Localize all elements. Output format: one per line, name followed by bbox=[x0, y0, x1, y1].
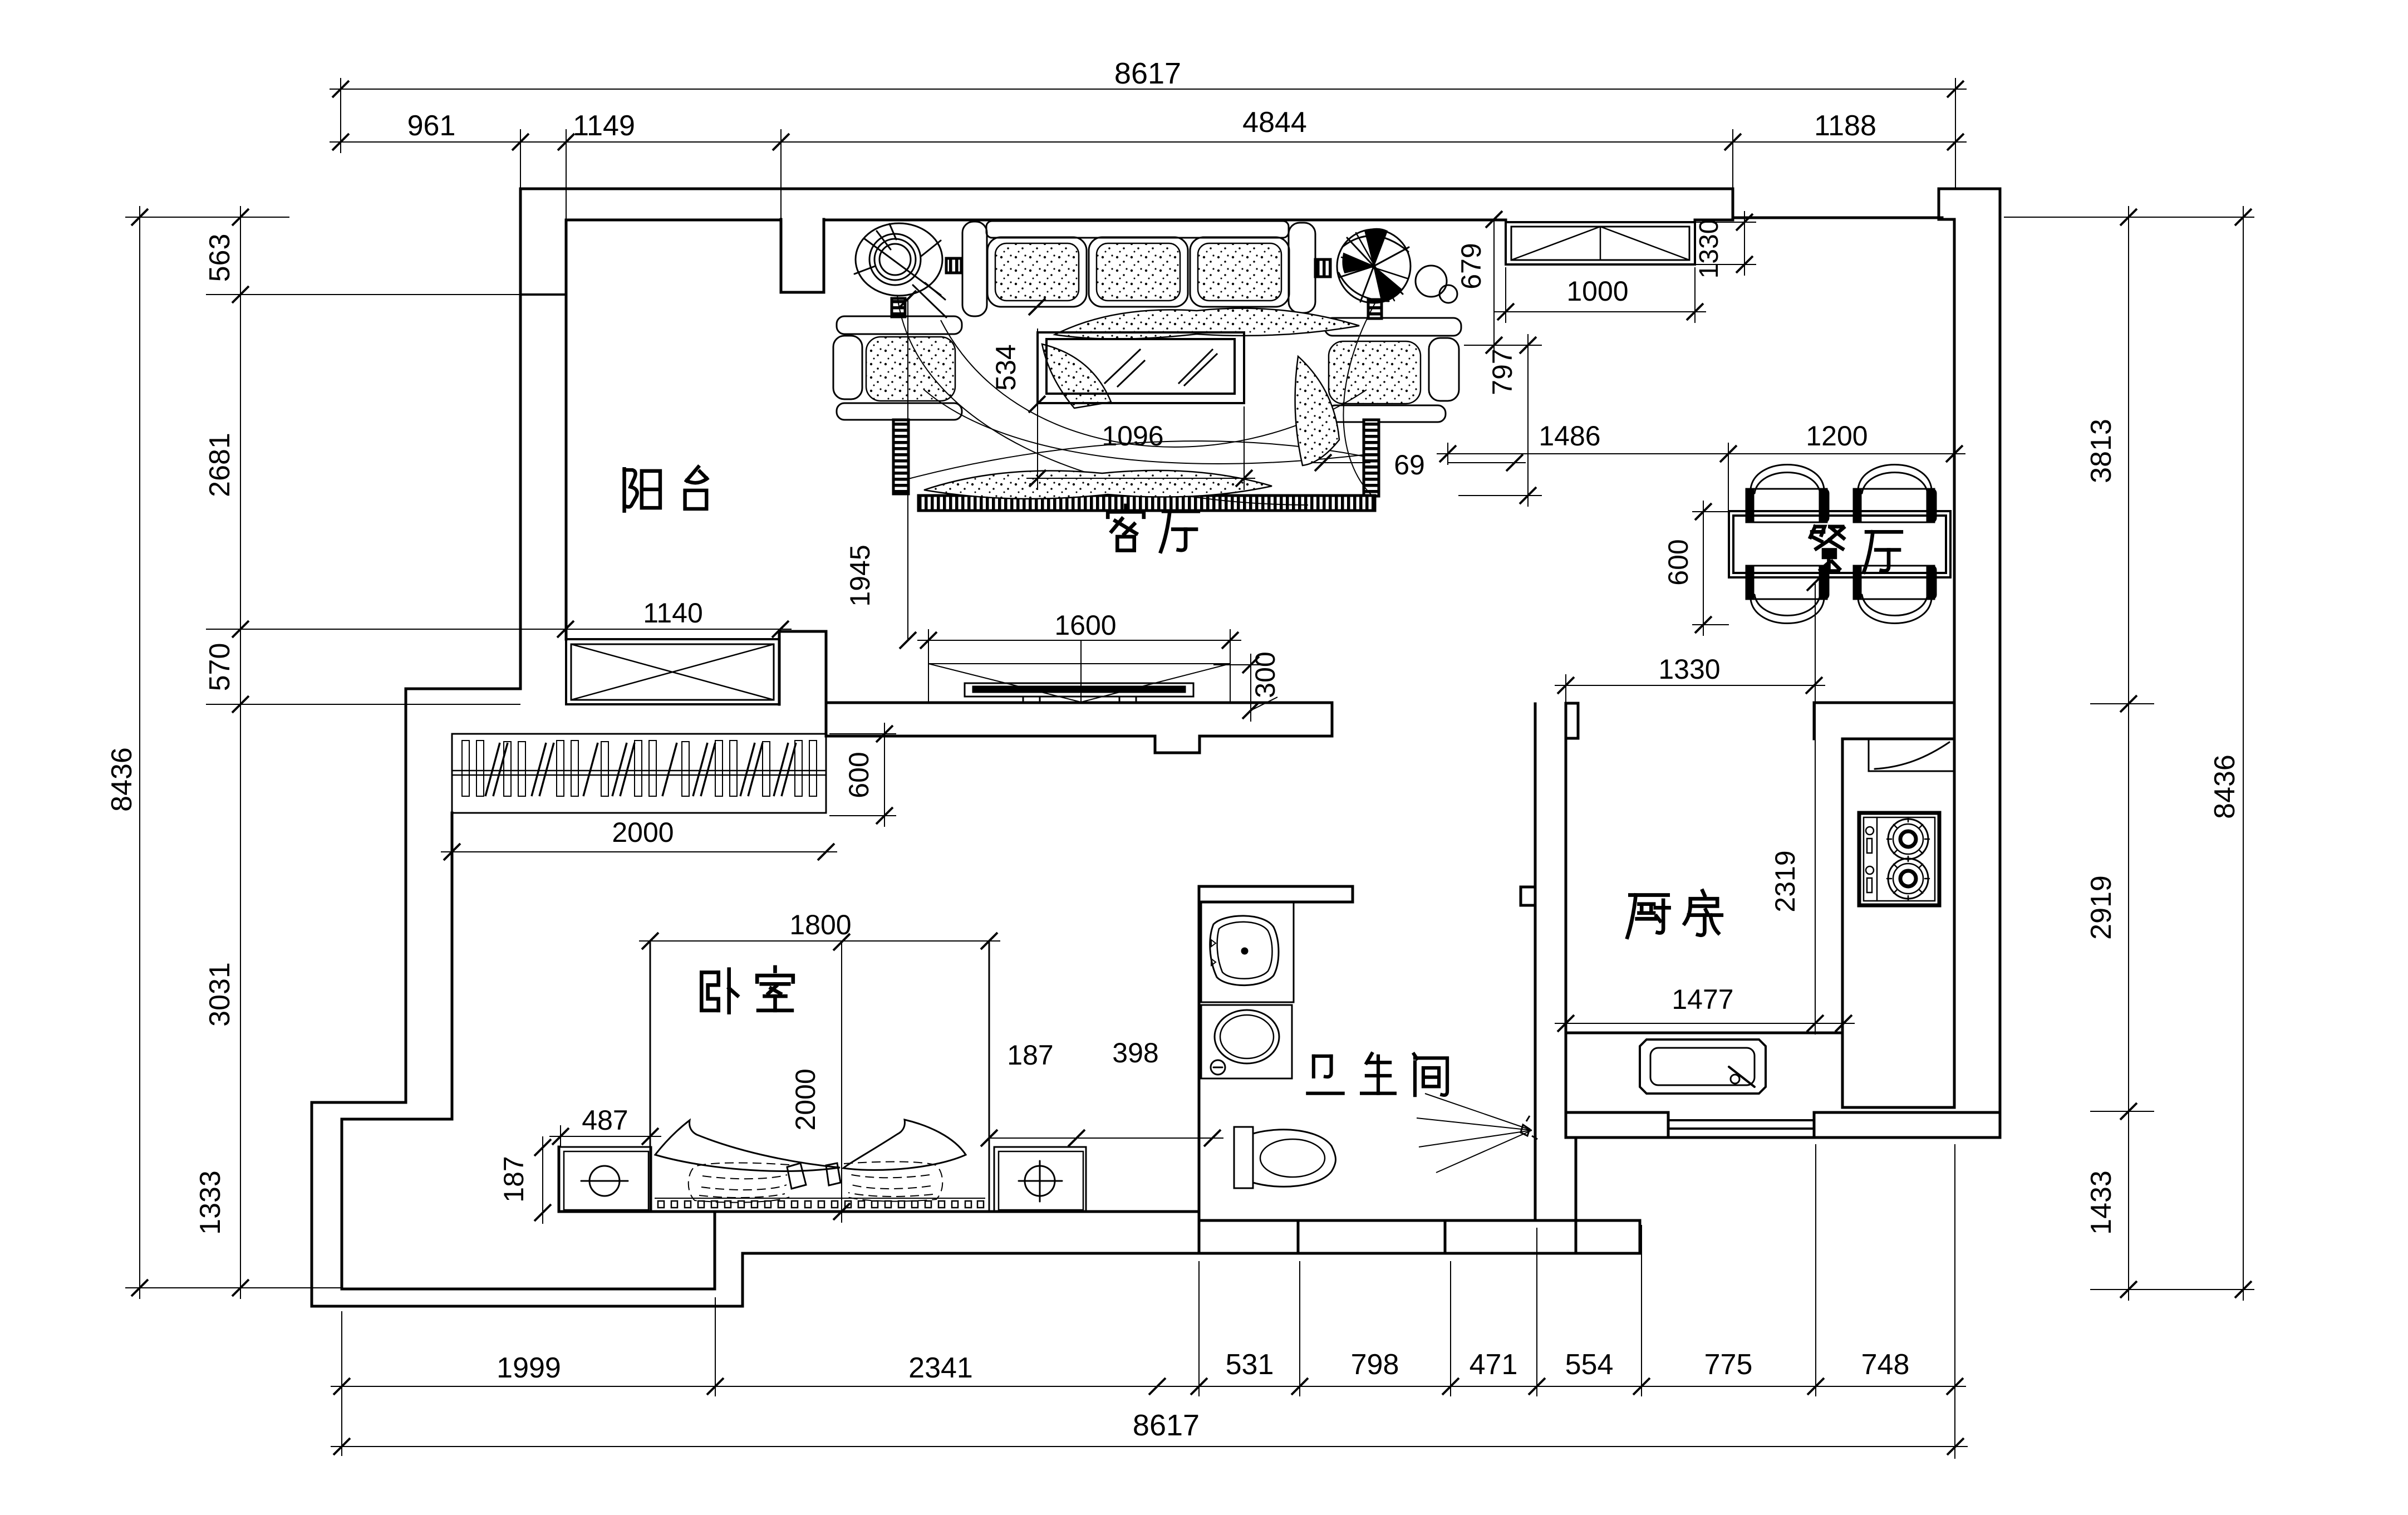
svg-text:8617: 8617 bbox=[1133, 1409, 1200, 1442]
svg-text:2000: 2000 bbox=[612, 817, 674, 848]
svg-text:1600: 1600 bbox=[1054, 610, 1116, 641]
svg-text:775: 775 bbox=[1704, 1349, 1753, 1381]
svg-text:1096: 1096 bbox=[1102, 420, 1163, 452]
svg-text:600: 600 bbox=[843, 752, 874, 798]
svg-text:4844: 4844 bbox=[1242, 106, 1307, 139]
svg-text:1800: 1800 bbox=[789, 909, 851, 940]
svg-text:600: 600 bbox=[1663, 539, 1694, 585]
svg-text:3031: 3031 bbox=[204, 962, 236, 1027]
svg-text:531: 531 bbox=[1226, 1349, 1274, 1381]
svg-text:961: 961 bbox=[407, 110, 456, 142]
svg-text:1333: 1333 bbox=[194, 1170, 227, 1235]
svg-text:1433: 1433 bbox=[2085, 1170, 2117, 1235]
svg-text:187: 187 bbox=[1007, 1040, 1053, 1071]
svg-text:1200: 1200 bbox=[1806, 420, 1868, 452]
svg-text:300: 300 bbox=[1250, 651, 1281, 698]
svg-text:1999: 1999 bbox=[497, 1352, 561, 1384]
svg-text:797: 797 bbox=[1487, 349, 1518, 395]
svg-text:471: 471 bbox=[1470, 1349, 1518, 1381]
svg-text:798: 798 bbox=[1351, 1349, 1399, 1381]
svg-text:69: 69 bbox=[1394, 449, 1425, 481]
svg-text:1330: 1330 bbox=[1694, 219, 1724, 279]
svg-text:1330: 1330 bbox=[1658, 654, 1720, 685]
svg-text:1477: 1477 bbox=[1672, 984, 1733, 1015]
svg-text:2319: 2319 bbox=[1770, 850, 1801, 912]
svg-text:1486: 1486 bbox=[1539, 420, 1600, 452]
svg-text:398: 398 bbox=[1112, 1037, 1158, 1068]
svg-text:563: 563 bbox=[204, 234, 236, 282]
svg-text:1000: 1000 bbox=[1566, 276, 1628, 307]
svg-text:534: 534 bbox=[990, 344, 1021, 390]
svg-text:3813: 3813 bbox=[2085, 419, 2117, 483]
svg-text:2000: 2000 bbox=[790, 1068, 821, 1130]
svg-text:2681: 2681 bbox=[204, 433, 236, 497]
svg-text:2341: 2341 bbox=[908, 1352, 973, 1384]
svg-text:187: 187 bbox=[498, 1156, 529, 1202]
svg-text:748: 748 bbox=[1861, 1349, 1910, 1381]
svg-text:487: 487 bbox=[582, 1105, 628, 1136]
svg-text:1945: 1945 bbox=[844, 545, 876, 606]
svg-text:8436: 8436 bbox=[2209, 754, 2241, 819]
svg-text:570: 570 bbox=[204, 643, 236, 692]
svg-text:8436: 8436 bbox=[106, 747, 138, 812]
svg-text:8617: 8617 bbox=[1114, 57, 1181, 90]
svg-text:1140: 1140 bbox=[643, 597, 703, 629]
svg-text:1188: 1188 bbox=[1814, 110, 1876, 142]
svg-text:2919: 2919 bbox=[2085, 875, 2117, 940]
svg-text:554: 554 bbox=[1565, 1349, 1614, 1381]
svg-text:1149: 1149 bbox=[573, 110, 635, 142]
svg-text:679: 679 bbox=[1456, 243, 1487, 289]
